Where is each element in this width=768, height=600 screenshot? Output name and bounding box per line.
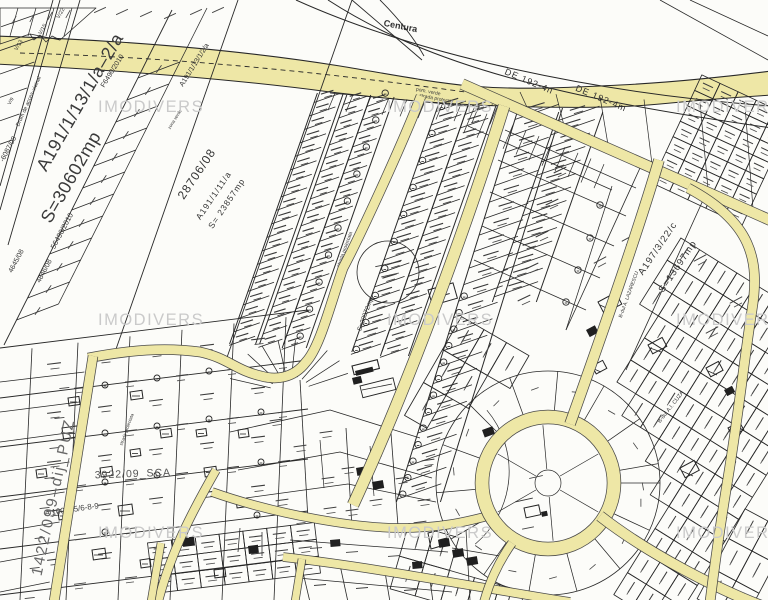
svg-text:IMODIVERS: IMODIVERS [98,311,204,329]
svg-text:IMODIVERS: IMODIVERS [676,98,768,116]
svg-text:IMODIVERS: IMODIVERS [387,311,493,329]
svg-text:IMODIVERS: IMODIVERS [387,98,493,116]
svg-text:IMODIVERS: IMODIVERS [387,524,493,542]
svg-text:IMODIVERS: IMODIVERS [676,524,768,542]
svg-text:IMODIVERS: IMODIVERS [98,524,204,542]
svg-text:IMODIVERS: IMODIVERS [676,311,768,329]
svg-text:IMODIVERS: IMODIVERS [98,98,204,116]
